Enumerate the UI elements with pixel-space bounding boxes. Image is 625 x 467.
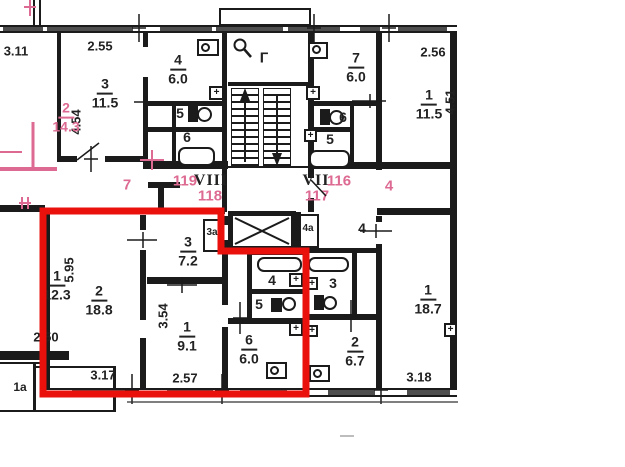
wall <box>306 248 378 253</box>
vestibule <box>219 8 311 26</box>
stair-flight <box>231 88 259 167</box>
room-area: 9.1 <box>177 338 196 354</box>
window <box>407 390 450 395</box>
wall <box>0 410 116 412</box>
plus-glyph: + <box>293 324 299 334</box>
room-area: 18.7 <box>414 301 441 317</box>
floor-plan: ++++++++3.112.554.542.564.515.953.543.17… <box>0 0 625 467</box>
apartment-number-116: 116 <box>327 174 351 189</box>
room-number: 3 <box>97 77 113 95</box>
apartment-number-119: 119 <box>173 174 197 189</box>
window <box>398 27 447 31</box>
room-number: 1 <box>421 88 437 106</box>
room-area-fraction-9.1: 19.1 <box>177 320 196 355</box>
wall <box>105 156 148 162</box>
stove-burner <box>313 369 322 378</box>
room-area: 7.2 <box>178 253 197 269</box>
plan-label-3: 3 <box>329 276 337 290</box>
vent-shaft-icon: + <box>306 325 318 337</box>
plan-label-4a: 4a <box>302 224 313 234</box>
vent-shaft-icon: + <box>209 86 224 100</box>
room-area: 6.0 <box>239 351 258 367</box>
room-area: 12.3 <box>43 287 70 303</box>
room-number: 3 <box>180 235 196 253</box>
wall <box>143 77 148 165</box>
wall <box>57 33 61 157</box>
room-area-fraction-11.5: 111.5 <box>416 88 442 123</box>
wall <box>147 277 228 284</box>
plan-label-4: 4 <box>268 273 276 287</box>
bathtub <box>257 257 302 272</box>
vent-shaft-icon: + <box>289 322 303 336</box>
wall <box>247 251 306 255</box>
plan-label-2.56: 2.56 <box>420 46 445 59</box>
plan-label-2.50: 2.50 <box>33 331 58 344</box>
wall <box>222 327 228 390</box>
window <box>328 390 375 395</box>
room-area-fraction-11.5: 311.5 <box>92 77 118 112</box>
apartment-number-117: 117 <box>305 189 329 204</box>
plan-label-Г: Г <box>260 51 269 66</box>
room-area: 11.5 <box>416 106 442 122</box>
window <box>360 27 380 31</box>
stove-burner <box>312 45 321 54</box>
wall <box>148 101 225 106</box>
chute-tail <box>244 49 251 57</box>
window <box>72 390 130 395</box>
room-number: 1 <box>420 283 436 301</box>
vent-shaft-icon: + <box>306 277 318 290</box>
wall <box>140 215 146 230</box>
wall <box>376 216 382 222</box>
plan-label-2.57: 2.57 <box>172 372 197 385</box>
wall <box>247 289 306 294</box>
room-area-fraction-6.7: 26.7 <box>345 335 364 370</box>
room-area-fraction-18.7: 118.7 <box>414 283 441 318</box>
plan-label-6: 6 <box>339 110 347 124</box>
elevator-shaft <box>228 211 296 251</box>
wall <box>57 156 77 162</box>
room-area: 6.0 <box>346 69 365 85</box>
toilet-tank <box>320 109 330 125</box>
room-area: 14.3 <box>52 119 79 135</box>
apartment-number-118: 118 <box>198 189 222 204</box>
toilet-bowl <box>197 107 212 122</box>
wall <box>140 338 146 390</box>
room-area-fraction-6.0: 66.0 <box>239 333 258 368</box>
room-area: 11.5 <box>92 95 118 111</box>
plan-label-6: 6 <box>183 130 191 144</box>
window <box>3 27 43 31</box>
plus-glyph: + <box>293 275 299 285</box>
room-number: 6 <box>241 333 257 351</box>
window <box>160 27 212 31</box>
plan-label-5: 5 <box>326 132 334 146</box>
window <box>167 390 213 395</box>
chute-icon <box>235 40 246 51</box>
plan-label-3.11: 3.11 <box>4 45 29 58</box>
plan-label-4: 4 <box>358 221 366 235</box>
window <box>240 390 287 395</box>
plus-glyph: + <box>310 88 316 98</box>
wall <box>450 25 457 395</box>
room-area-fraction-12.3: 112.3 <box>43 269 70 304</box>
wall <box>247 251 252 318</box>
wall <box>143 33 148 47</box>
room-number: 2 <box>347 335 363 353</box>
wall <box>306 314 378 320</box>
room-area: 6.7 <box>345 353 364 369</box>
wall <box>45 208 225 214</box>
room-area-fraction-14.3: 214.3 <box>52 101 79 136</box>
plan-label-3a: 3a <box>206 228 217 238</box>
room-number: 1 <box>49 269 65 287</box>
room-area-fraction-6.0: 76.0 <box>346 51 365 86</box>
door-leaf <box>77 143 99 160</box>
plan-label-2.55: 2.55 <box>87 40 112 53</box>
room-number: 7 <box>348 51 364 69</box>
plus-glyph: + <box>214 88 220 98</box>
wall <box>33 0 35 27</box>
apartment-number-4: 4 <box>385 179 393 194</box>
wall <box>376 33 382 170</box>
vent-shaft-icon: + <box>289 273 303 287</box>
room-number: 4 <box>170 53 186 71</box>
toilet-bowl <box>282 297 296 311</box>
bathtub <box>178 147 215 166</box>
room-area-fraction-7.2: 37.2 <box>178 235 197 270</box>
apartment-number-7: 7 <box>123 178 131 193</box>
toilet-bowl <box>323 296 337 310</box>
wall <box>39 0 41 27</box>
vent-shaft-icon: + <box>304 129 317 142</box>
plus-glyph: + <box>309 326 315 336</box>
wall <box>350 103 354 165</box>
wall <box>33 362 36 412</box>
vent-shaft-icon: + <box>444 323 457 337</box>
plus-glyph: + <box>308 131 314 141</box>
room-area: 18.8 <box>85 302 112 318</box>
plus-glyph: + <box>309 279 315 289</box>
room-area: 6.0 <box>168 71 187 87</box>
room-number: 2 <box>91 284 107 302</box>
plan-label-3.54: 3.54 <box>157 303 170 328</box>
toilet-tank <box>314 295 324 310</box>
stair-flight <box>263 88 291 167</box>
plan-label-1a: 1a <box>13 381 26 393</box>
plan-label-3.18: 3.18 <box>406 371 431 384</box>
stove-burner <box>201 43 210 52</box>
wall <box>0 351 69 360</box>
plan-label-4.51: 4.51 <box>444 89 457 114</box>
stove-burner <box>270 366 279 375</box>
window <box>47 27 133 31</box>
room-area-fraction-6.0: 46.0 <box>168 53 187 88</box>
room-number: 1 <box>179 320 195 338</box>
wall <box>228 82 308 86</box>
plan-label-5: 5 <box>255 297 263 311</box>
bathtub <box>308 257 349 272</box>
plan-label-3.17: 3.17 <box>90 369 115 382</box>
wall <box>314 101 376 106</box>
wall <box>352 250 357 316</box>
window <box>216 27 283 31</box>
window <box>288 27 340 31</box>
room-area-fraction-18.8: 218.8 <box>85 284 112 319</box>
room-number: 2 <box>58 101 74 119</box>
vent-shaft-icon: + <box>306 86 320 100</box>
wall <box>140 250 146 320</box>
wall <box>0 205 45 212</box>
toilet-tank <box>271 298 282 312</box>
toilet-tank <box>188 106 198 122</box>
wall <box>377 208 457 215</box>
plus-glyph: + <box>448 325 454 335</box>
bathtub <box>309 150 350 168</box>
plan-label-5: 5 <box>176 106 184 120</box>
